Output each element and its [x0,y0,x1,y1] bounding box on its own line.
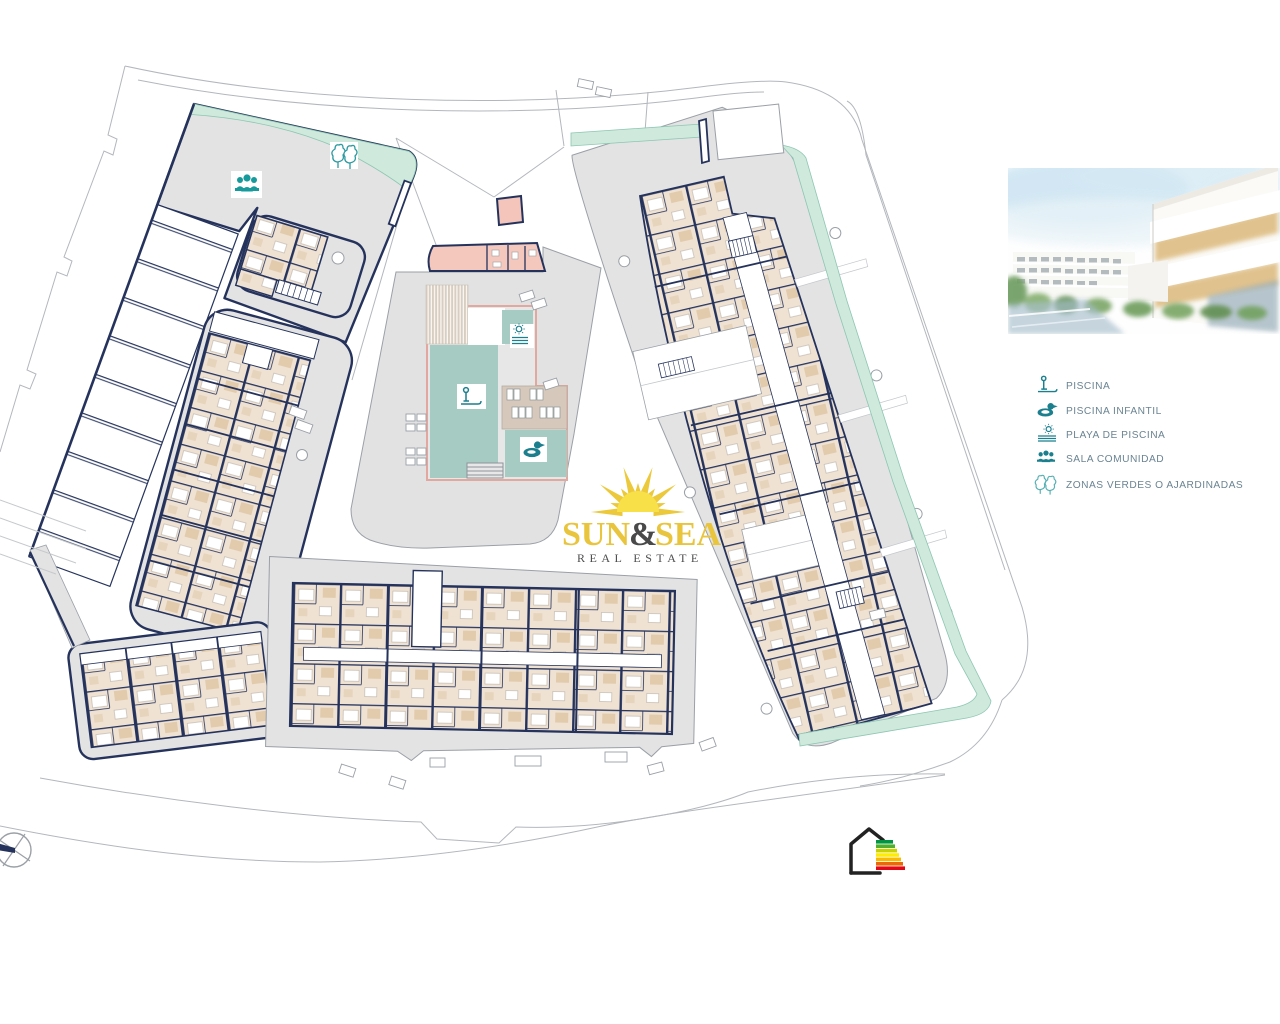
svg-text:&: & [629,516,657,553]
svg-text:SALA COMUNIDAD: SALA COMUNIDAD [1066,454,1164,465]
svg-text:SUN: SUN [562,516,630,553]
svg-text:PISCINA: PISCINA [1066,381,1110,392]
svg-text:REAL ESTATE: REAL ESTATE [577,551,703,565]
svg-text:PLAYA DE PISCINA: PLAYA DE PISCINA [1066,430,1165,441]
svg-text:SEA: SEA [655,516,722,553]
svg-text:PISCINA INFANTIL: PISCINA INFANTIL [1066,406,1162,417]
svg-text:ZONAS VERDES O AJARDINADAS: ZONAS VERDES O AJARDINADAS [1066,480,1243,491]
